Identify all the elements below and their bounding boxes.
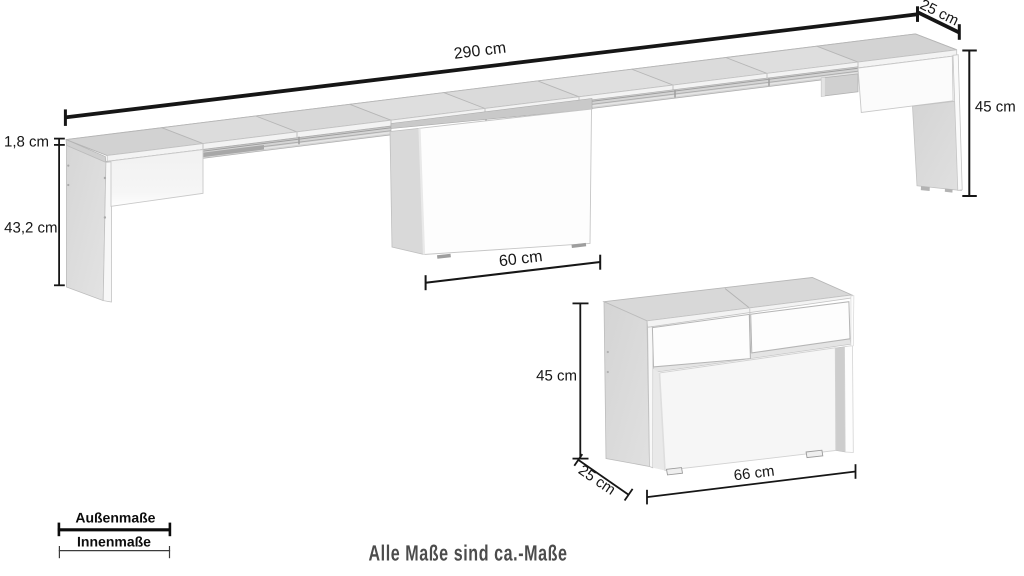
svg-text:45 cm: 45 cm: [975, 99, 1016, 116]
svg-text:Alle Maße sind ca.-Maße: Alle Maße sind ca.-Maße: [368, 541, 567, 566]
svg-text:Innenmaße: Innenmaße: [77, 534, 151, 550]
svg-text:1,8 cm: 1,8 cm: [4, 133, 49, 150]
svg-text:45 cm: 45 cm: [536, 367, 577, 384]
svg-text:43,2 cm: 43,2 cm: [4, 220, 57, 237]
svg-text:Außenmaße: Außenmaße: [75, 510, 155, 526]
